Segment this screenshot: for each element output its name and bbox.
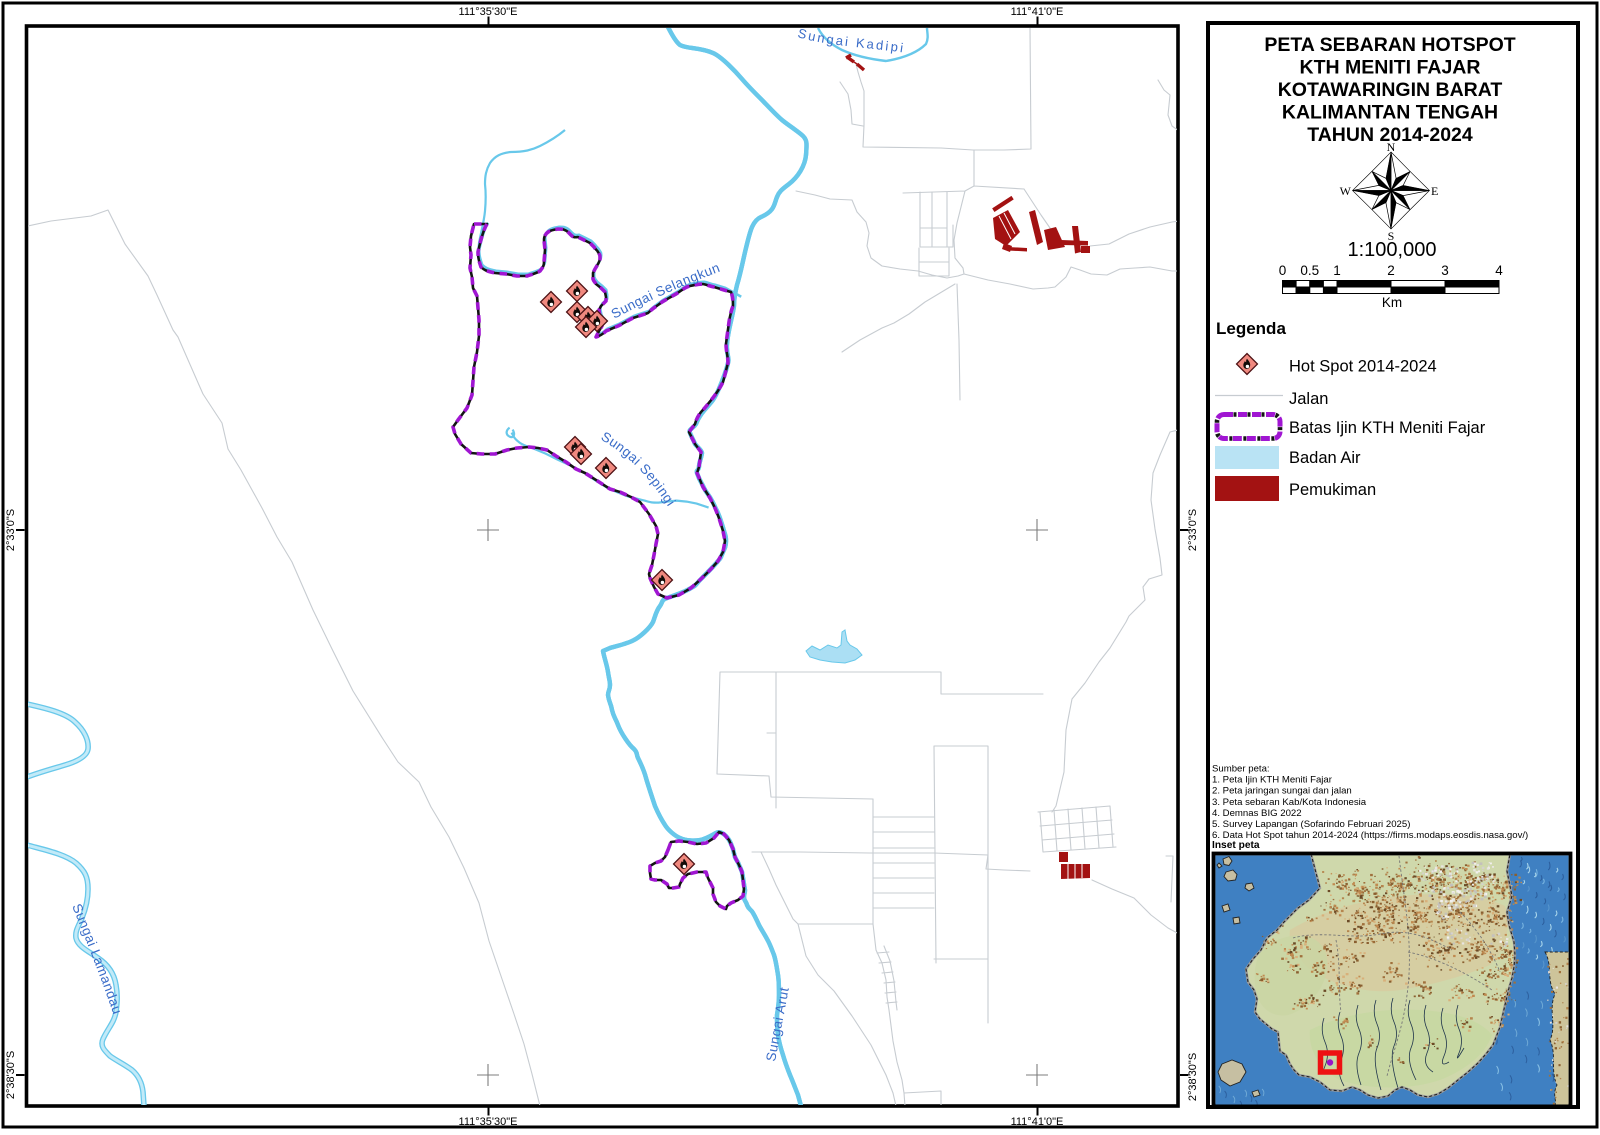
svg-text:2: 2 xyxy=(1387,263,1395,278)
svg-text:2. Peta jaringan sungai dan ja: 2. Peta jaringan sungai dan jalan xyxy=(1212,786,1352,797)
svg-text:Inset peta: Inset peta xyxy=(1212,840,1260,851)
svg-text:2°38'30"S: 2°38'30"S xyxy=(5,1051,17,1099)
svg-text:111°41'0"E: 111°41'0"E xyxy=(1011,1116,1064,1128)
svg-text:KOTAWARINGIN BARAT: KOTAWARINGIN BARAT xyxy=(1278,79,1503,101)
svg-text:2°33'0"S: 2°33'0"S xyxy=(1187,509,1199,551)
svg-text:111°41'0"E: 111°41'0"E xyxy=(1011,6,1064,18)
svg-text:Sumber peta:: Sumber peta: xyxy=(1212,763,1270,774)
svg-text:2°33'0"S: 2°33'0"S xyxy=(5,509,17,551)
svg-text:3. Peta sebaran Kab/Kota Indon: 3. Peta sebaran Kab/Kota Indonesia xyxy=(1212,797,1367,808)
svg-text:Batas Ijin KTH Meniti Fajar: Batas Ijin KTH Meniti Fajar xyxy=(1289,419,1486,437)
svg-text:PETA SEBARAN HOTSPOT: PETA SEBARAN HOTSPOT xyxy=(1264,34,1515,56)
svg-text:Jalan: Jalan xyxy=(1289,390,1328,408)
svg-text:Legenda: Legenda xyxy=(1216,319,1286,338)
svg-text:4. Demnas BIG 2022: 4. Demnas BIG 2022 xyxy=(1212,808,1302,819)
svg-text:Pemukiman: Pemukiman xyxy=(1289,481,1376,499)
svg-text:4: 4 xyxy=(1495,263,1503,278)
svg-text:3: 3 xyxy=(1441,263,1449,278)
svg-text:W: W xyxy=(1340,184,1352,198)
svg-text:Hot Spot 2014-2024: Hot Spot 2014-2024 xyxy=(1289,358,1437,376)
svg-text:111°35'30"E: 111°35'30"E xyxy=(459,6,518,18)
svg-text:2°38'30"S: 2°38'30"S xyxy=(1187,1053,1199,1101)
svg-text:1. Peta Ijin KTH Meniti Fajar: 1. Peta Ijin KTH Meniti Fajar xyxy=(1212,774,1333,785)
svg-text:Badan Air: Badan Air xyxy=(1289,449,1361,467)
svg-text:1: 1 xyxy=(1333,263,1341,278)
svg-text:Km: Km xyxy=(1382,295,1402,310)
svg-text:0: 0 xyxy=(1279,263,1287,278)
svg-text:1:100,000: 1:100,000 xyxy=(1348,239,1437,261)
svg-text:5. Survey Lapangan (Sofarindo: 5. Survey Lapangan (Sofarindo Februari 2… xyxy=(1212,819,1410,830)
svg-text:N: N xyxy=(1387,140,1396,154)
svg-text:0.5: 0.5 xyxy=(1300,263,1319,278)
svg-text:KALIMANTAN TENGAH: KALIMANTAN TENGAH xyxy=(1282,102,1498,124)
svg-text:KTH MENITI FAJAR: KTH MENITI FAJAR xyxy=(1300,57,1481,79)
svg-text:E: E xyxy=(1431,184,1438,198)
svg-text:111°35'30"E: 111°35'30"E xyxy=(459,1116,518,1128)
